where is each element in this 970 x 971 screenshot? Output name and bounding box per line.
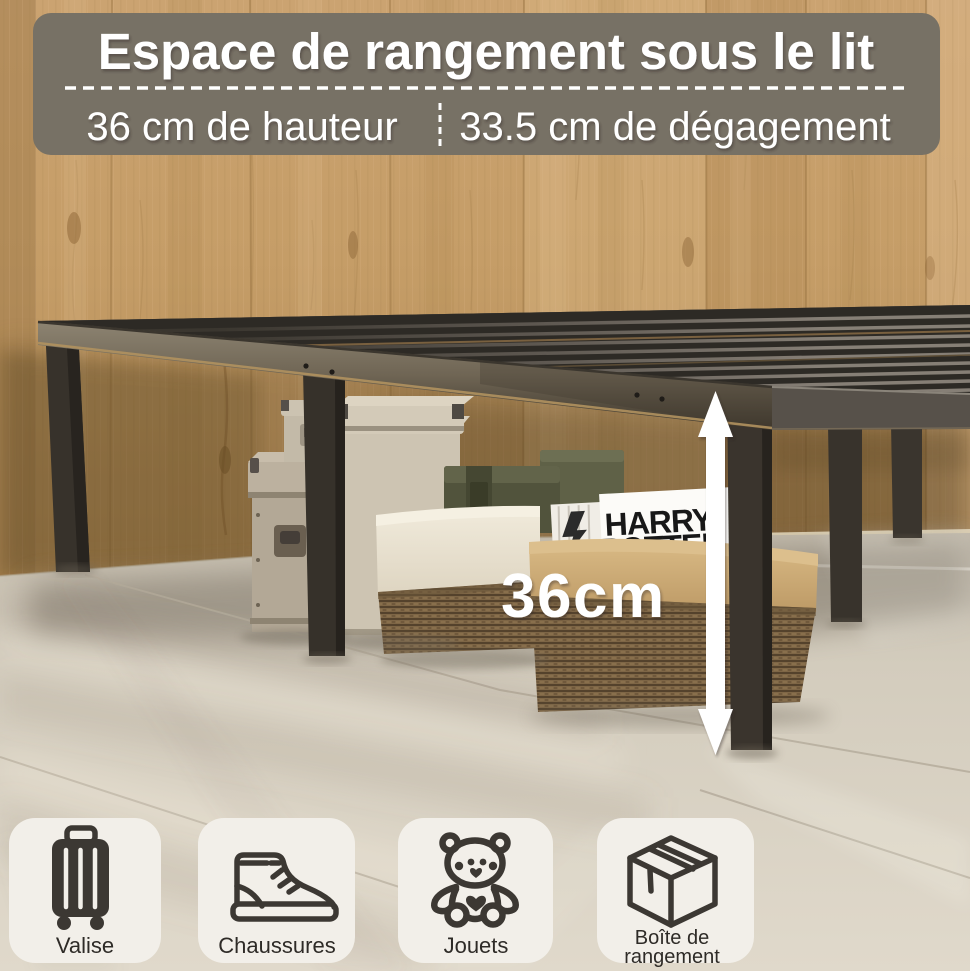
svg-text:33.5 cm de dégagement: 33.5 cm de dégagement [459, 105, 890, 149]
svg-text:Valise: Valise [56, 933, 114, 958]
svg-text:Espace de rangement sous le li: Espace de rangement sous le lit [98, 23, 875, 80]
svg-text:rangement: rangement [624, 946, 720, 968]
svg-text:Jouets: Jouets [444, 933, 509, 958]
svg-text:36 cm de hauteur: 36 cm de hauteur [86, 105, 397, 149]
svg-text:36cm: 36cm [501, 562, 666, 631]
svg-text:Chaussures: Chaussures [218, 933, 335, 958]
